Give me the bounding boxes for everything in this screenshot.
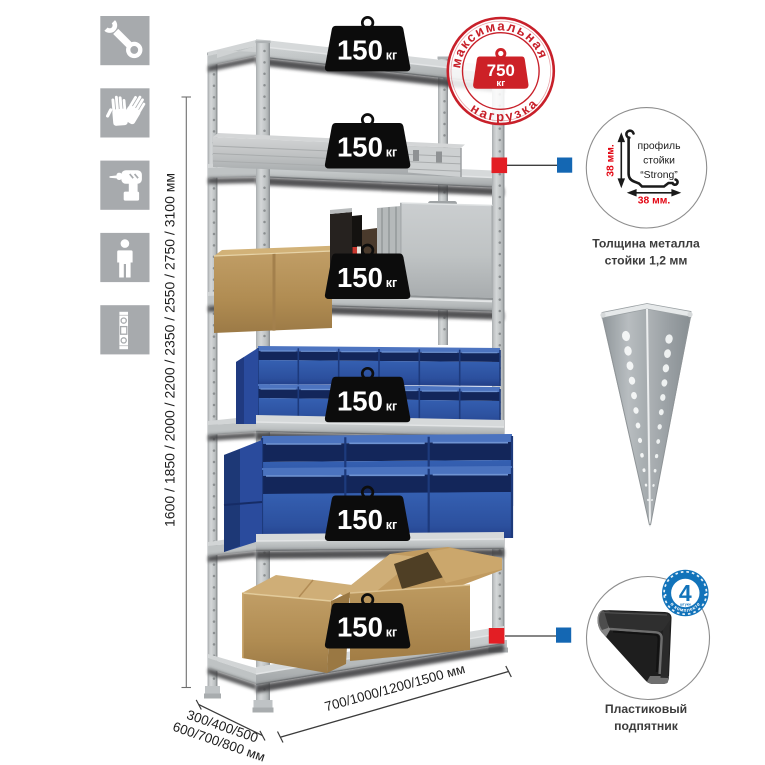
svg-text:150: 150	[337, 35, 383, 66]
svg-text:кг: кг	[386, 49, 397, 63]
svg-text:150: 150	[337, 504, 383, 535]
svg-text:кг: кг	[386, 518, 397, 532]
svg-text:стойки 1,2 мм: стойки 1,2 мм	[605, 254, 688, 268]
svg-text:150: 150	[337, 612, 383, 643]
svg-text:кг: кг	[496, 78, 505, 89]
svg-text:Пластиковый: Пластиковый	[605, 702, 687, 716]
svg-text:кг: кг	[386, 276, 397, 290]
svg-text:38 мм.: 38 мм.	[606, 144, 617, 177]
svg-text:1600 / 1850 / 2000 / 2200 / 23: 1600 / 1850 / 2000 / 2200 / 2350 / 2550 …	[162, 173, 178, 527]
svg-text:кг: кг	[386, 626, 397, 640]
svg-text:150: 150	[337, 262, 383, 293]
svg-text:150: 150	[337, 132, 383, 163]
svg-text:38 мм.: 38 мм.	[638, 196, 671, 207]
svg-text:кг: кг	[386, 146, 397, 160]
svg-text:подпятник: подпятник	[614, 719, 679, 733]
svg-text:профиль: профиль	[637, 140, 680, 152]
svg-text:“Strong”: “Strong”	[640, 170, 678, 181]
svg-text:кг: кг	[386, 399, 397, 413]
svg-text:150: 150	[337, 385, 383, 416]
svg-text:стойки: стойки	[643, 156, 675, 167]
svg-text:штуки: штуки	[680, 602, 691, 606]
svg-text:Толщина металла: Толщина металла	[592, 237, 700, 251]
